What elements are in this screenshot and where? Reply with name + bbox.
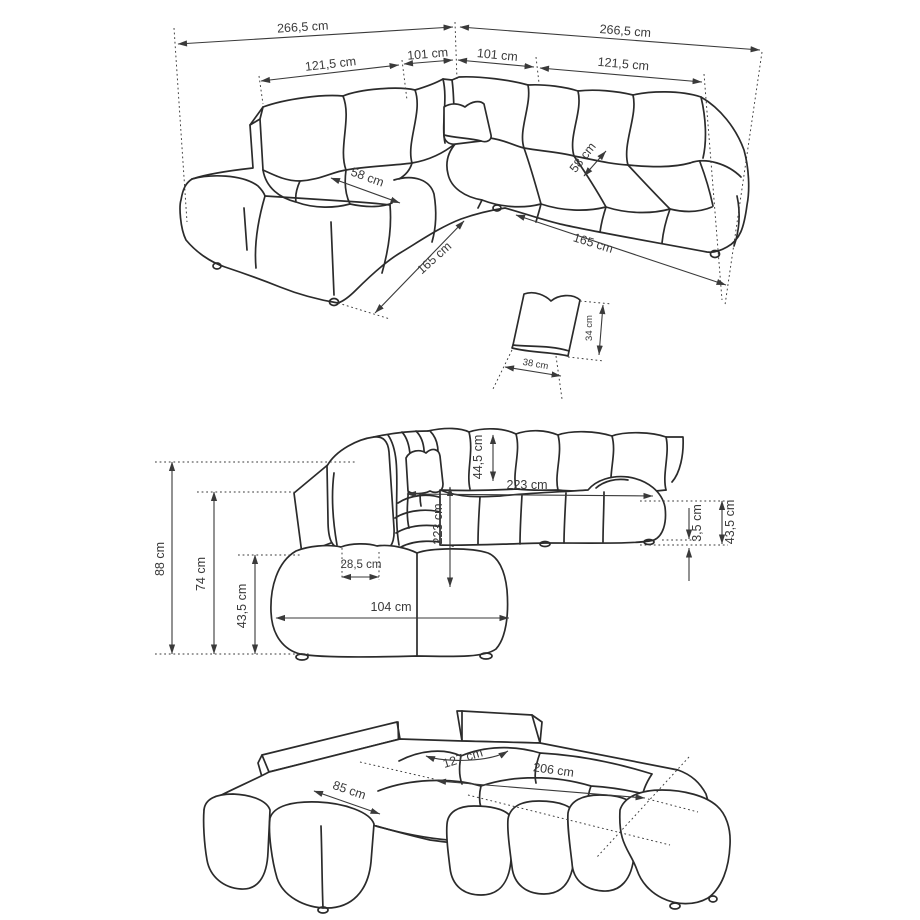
svg-text:74 cm: 74 cm <box>194 557 208 591</box>
svg-text:34 cm: 34 cm <box>584 315 595 341</box>
svg-text:43,5 cm: 43,5 cm <box>235 584 249 628</box>
svg-text:223 cm: 223 cm <box>431 504 445 545</box>
svg-text:88 cm: 88 cm <box>153 542 167 576</box>
svg-text:223 cm: 223 cm <box>507 478 548 492</box>
svg-text:44,5 cm: 44,5 cm <box>471 435 485 479</box>
svg-text:104 cm: 104 cm <box>371 600 412 614</box>
svg-text:28,5 cm: 28,5 cm <box>341 559 382 571</box>
svg-text:3,5 cm: 3,5 cm <box>690 504 704 542</box>
svg-text:43,5 cm: 43,5 cm <box>723 500 737 544</box>
